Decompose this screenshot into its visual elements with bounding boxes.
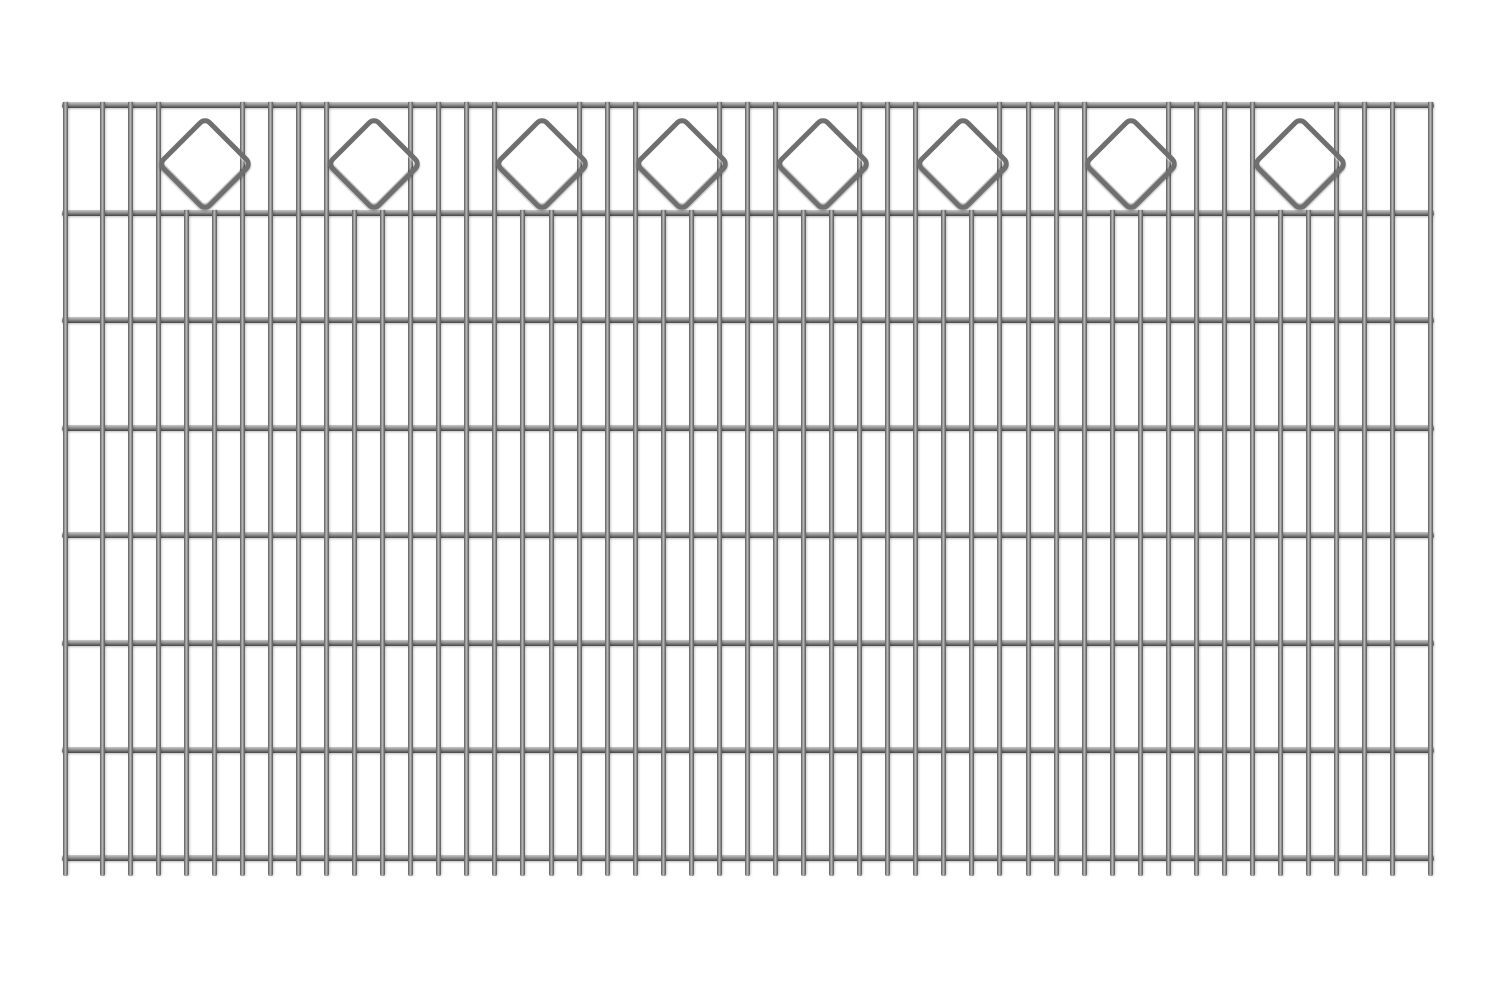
- vertical-wire: [633, 102, 638, 876]
- vertical-wire: [63, 102, 68, 876]
- vertical-wire: [324, 102, 329, 876]
- vertical-wire: [268, 102, 273, 876]
- vertical-wire: [408, 102, 413, 876]
- vertical-wire-below-ornament-band: [1138, 210, 1143, 876]
- fence-product-image: [0, 0, 1500, 1000]
- vertical-wire-below-ornament-band: [661, 210, 666, 876]
- vertical-wire: [913, 102, 918, 876]
- vertical-wire: [464, 102, 469, 876]
- fence-scene: [0, 0, 1500, 1000]
- vertical-wire: [156, 102, 161, 876]
- vertical-wire: [997, 102, 1002, 876]
- vertical-wire: [1428, 102, 1433, 876]
- vertical-wire-below-ornament-band: [212, 210, 217, 876]
- vertical-wire-below-ornament-band: [941, 210, 946, 876]
- vertical-wire: [1026, 102, 1031, 876]
- vertical-wire-below-ornament-band: [1278, 210, 1283, 876]
- vertical-wire: [1054, 102, 1059, 876]
- vertical-wire-below-ornament-band: [969, 210, 974, 876]
- vertical-wire-below-ornament-band: [380, 210, 385, 876]
- vertical-wire: [1082, 102, 1087, 876]
- vertical-wire: [605, 102, 610, 876]
- vertical-wire-below-ornament-band: [829, 210, 834, 876]
- vertical-wire: [436, 102, 441, 876]
- vertical-wire: [128, 102, 133, 876]
- vertical-wire: [1222, 102, 1227, 876]
- vertical-wire: [1166, 102, 1171, 876]
- vertical-wire: [717, 102, 722, 876]
- vertical-wire-below-ornament-band: [184, 210, 189, 876]
- vertical-wire: [857, 102, 862, 876]
- vertical-wire: [577, 102, 582, 876]
- vertical-wire-below-ornament-band: [549, 210, 554, 876]
- vertical-wire: [745, 102, 750, 876]
- vertical-wire: [1362, 102, 1367, 876]
- vertical-wire-below-ornament-band: [1306, 210, 1311, 876]
- vertical-wire-below-ornament-band: [520, 210, 525, 876]
- vertical-wire-below-ornament-band: [689, 210, 694, 876]
- vertical-wire: [240, 102, 245, 876]
- vertical-wire: [1194, 102, 1199, 876]
- vertical-wire: [1250, 102, 1255, 876]
- ornaments-layer: [0, 0, 1500, 1000]
- vertical-wire: [100, 102, 105, 876]
- vertical-wire: [773, 102, 778, 876]
- vertical-wire: [1390, 102, 1395, 876]
- vertical-wire: [296, 102, 301, 876]
- vertical-wire-below-ornament-band: [352, 210, 357, 876]
- vertical-wire-below-ornament-band: [1110, 210, 1115, 876]
- vertical-wire: [885, 102, 890, 876]
- vertical-wire-below-ornament-band: [801, 210, 806, 876]
- vertical-wire: [1334, 102, 1339, 876]
- vertical-wire: [492, 102, 497, 876]
